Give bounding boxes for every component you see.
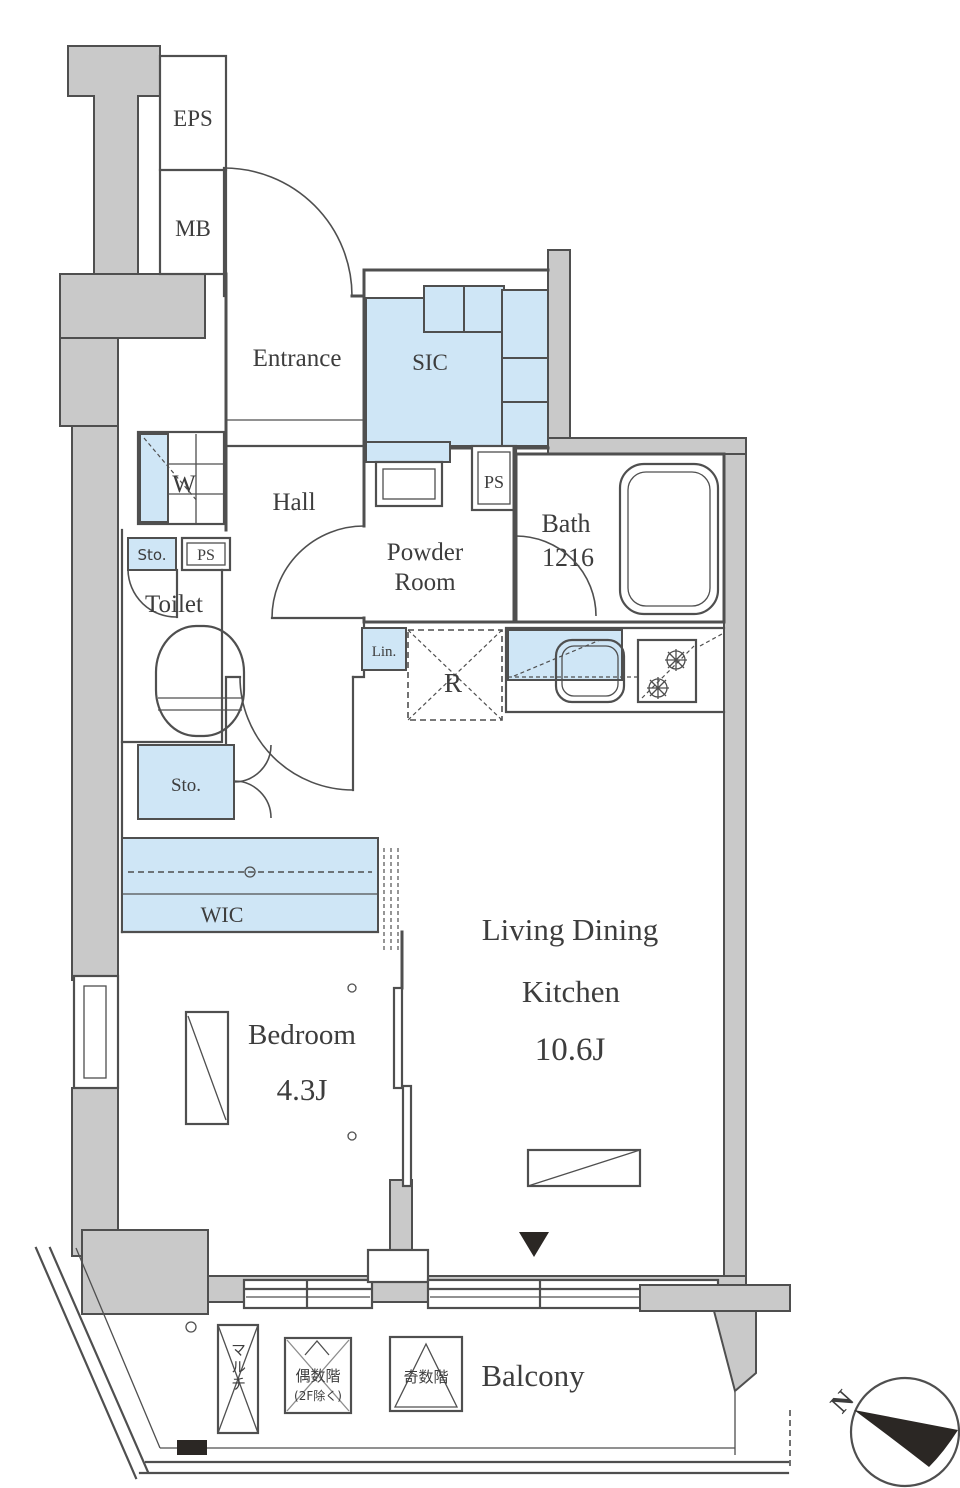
sto-mid-label: Sto. — [171, 775, 201, 796]
bathroom: Bath 1216 — [516, 454, 724, 622]
marker-dot — [348, 984, 356, 992]
washer-space: W — [138, 432, 224, 524]
bedroom: Bedroom 4.3J — [74, 932, 411, 1186]
entrance-label: Entrance — [253, 345, 342, 372]
even-floors-label-1: 偶数階 — [295, 1367, 340, 1385]
floor-plan: EPS MB Entrance SIC PS — [0, 0, 960, 1488]
wic-closet: WIC — [122, 838, 398, 950]
linen-shelf: Lin. — [362, 628, 406, 670]
compass: N — [824, 1378, 959, 1486]
closet-door-arc — [234, 781, 271, 818]
north-needle-icon — [854, 1410, 958, 1467]
window-pier — [368, 1250, 428, 1282]
ps-upper-label: PS — [484, 472, 504, 492]
hall-label: Hall — [272, 489, 315, 516]
accordion-door — [384, 848, 398, 950]
pipe-space-upper: PS — [472, 446, 516, 510]
stove-icon — [638, 640, 696, 702]
bedroom-window-south — [244, 1280, 372, 1308]
bath-size-label: 1216 — [542, 543, 594, 572]
powder-label-1: Powder — [387, 539, 464, 566]
entry-marker-triangle — [519, 1232, 549, 1257]
odd-floors-icon: 奇数階 — [390, 1337, 462, 1411]
toilet-bowl-icon — [156, 626, 244, 736]
burner-icon — [665, 649, 687, 671]
bedroom-label: Bedroom — [248, 1019, 356, 1051]
eps-label: EPS — [173, 106, 213, 131]
storage-ps-row: Sto. PS — [128, 538, 230, 570]
ldk-size-label: 10.6J — [535, 1032, 606, 1068]
toilet-label: Toilet — [145, 591, 203, 618]
odd-floors-label: 奇数階 — [403, 1368, 448, 1386]
eps-mb-shaft: EPS MB — [160, 56, 226, 274]
storage-lower: Sto. — [138, 745, 271, 819]
washbasin-icon — [376, 462, 442, 506]
fridge-label: R — [444, 668, 462, 698]
ps-mid-label: PS — [197, 547, 215, 564]
powder-label-2: Room — [394, 569, 456, 596]
even-floors-label-2: (2F除く) — [294, 1388, 342, 1403]
balcony-divider — [640, 1285, 790, 1468]
ldk-room: Living Dining Kitchen 10.6J — [482, 912, 659, 1257]
sic-closet: SIC — [364, 286, 548, 448]
sliding-door-panels — [394, 988, 411, 1186]
multi-rack-icon: マルチ — [218, 1325, 258, 1433]
even-floors-icon: 偶数階 (2F除く) — [285, 1338, 351, 1413]
sto-upper-label: Sto. — [137, 546, 166, 564]
bath-label: Bath — [541, 509, 590, 538]
multi-rack-label: マルチ — [229, 1342, 247, 1393]
balcony-label: Balcony — [481, 1358, 585, 1393]
ldk-label-1: Living Dining — [482, 912, 659, 947]
hall-area: Hall — [226, 489, 364, 790]
refrigerator-space: R — [408, 630, 502, 720]
bedroom-window-west — [74, 976, 118, 1088]
closet-door-arc — [234, 745, 271, 782]
ldk-label-2: Kitchen — [522, 974, 621, 1009]
washer-label: W — [172, 471, 196, 498]
burner-icon — [647, 677, 669, 699]
drain-circle — [186, 1322, 196, 1332]
linen-label: Lin. — [372, 644, 397, 660]
door-leaf-panel — [186, 1012, 228, 1124]
marker-dot — [348, 1132, 356, 1140]
bathtub-icon — [620, 464, 718, 614]
powder-room-door — [272, 526, 364, 618]
front-door — [224, 168, 352, 296]
balcony-drain-box — [177, 1440, 207, 1455]
kitchen-area: R — [408, 622, 724, 720]
wic-label: WIC — [201, 902, 244, 927]
sic-label: SIC — [412, 350, 448, 375]
bedroom-size-label: 4.3J — [277, 1072, 328, 1107]
counter-fixture — [528, 1150, 640, 1186]
mb-label: MB — [175, 216, 211, 241]
